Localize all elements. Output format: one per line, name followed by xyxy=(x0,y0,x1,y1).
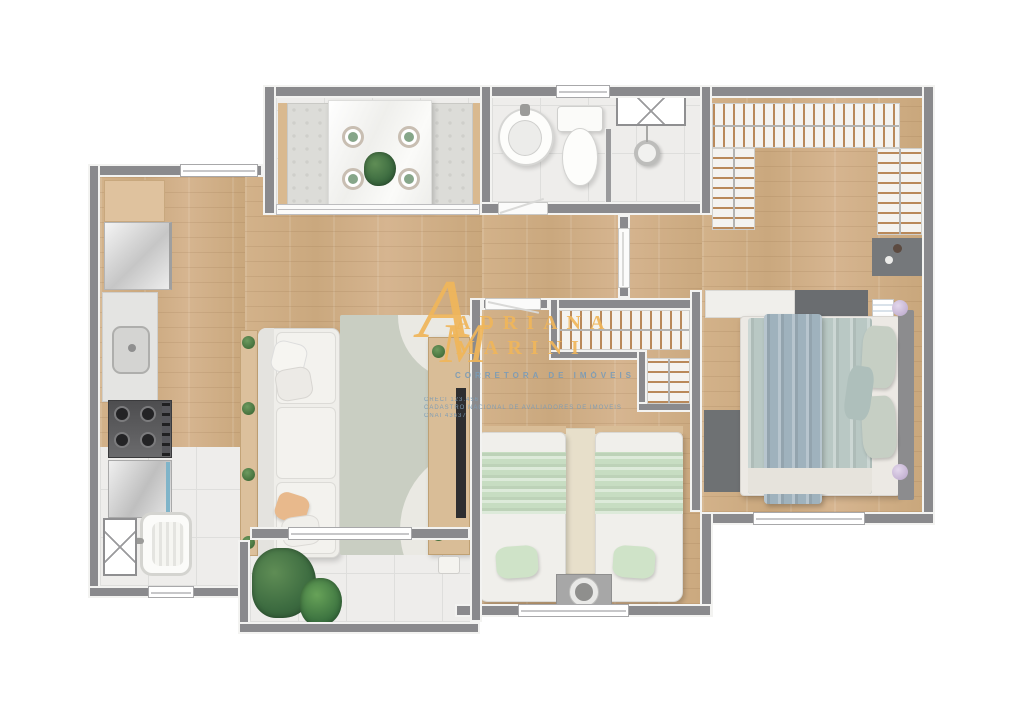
bathroom-sink-basin xyxy=(508,120,542,156)
service-area-window xyxy=(148,586,194,598)
bathroom-faucet xyxy=(520,104,530,116)
dining-bench-back-left xyxy=(278,103,287,205)
master-door-leaf xyxy=(622,232,624,286)
stove-burner xyxy=(114,432,130,448)
stove-burner xyxy=(140,406,156,422)
wall-master-left xyxy=(690,290,702,512)
stove-knob-panel xyxy=(162,402,170,456)
laundry-tub-board xyxy=(152,522,184,566)
wall-dining-left xyxy=(263,85,276,215)
wall-bath-closet-divider xyxy=(700,85,712,215)
bedroom2-window xyxy=(518,604,629,617)
console-plant xyxy=(242,468,255,481)
brand-tagline: CORRETORA DE IMÓVEIS xyxy=(455,371,635,380)
refrigerator xyxy=(104,222,172,290)
place-setting-plate xyxy=(398,168,420,190)
sofa-seat-cushion xyxy=(276,407,336,479)
bathroom-window xyxy=(556,85,610,98)
service-shaft xyxy=(103,518,137,576)
shower-head xyxy=(634,140,660,166)
stove-burner xyxy=(140,432,156,448)
bedroom2-closet-rack-right xyxy=(647,358,690,404)
single-bed-blanket xyxy=(478,452,566,514)
kitchen-faucet xyxy=(128,344,136,352)
brand-name-line1: ADRIANA xyxy=(456,312,613,335)
closet-rack-top xyxy=(712,103,900,148)
floor-plan: A M ADRIANA MARINI CORRETORA DE IMÓVEIS … xyxy=(0,0,1024,723)
dining-balcony-slider xyxy=(276,204,480,215)
wall-left xyxy=(88,164,100,598)
wall-bedroom2-right xyxy=(700,512,713,617)
console-plant xyxy=(242,402,255,415)
kitchen-window xyxy=(180,164,258,177)
closet-rack-right xyxy=(877,148,922,235)
tv-console-tray xyxy=(438,556,460,574)
wall-terrace-bottom xyxy=(238,622,480,634)
stove-burner xyxy=(114,406,130,422)
shower-partition xyxy=(605,128,612,208)
brand-detail-line2: CADASTRO NACIONAL DE AVALIADORES DE IMÓV… xyxy=(424,405,622,411)
single-bed-cushion xyxy=(612,545,656,580)
bedside-lamp xyxy=(892,464,908,480)
dining-bench-right xyxy=(430,103,473,205)
place-setting-plate xyxy=(398,126,420,148)
bedroom2-closet-wall-top xyxy=(549,298,702,310)
brand-detail-line3: CNAI 43637 xyxy=(424,413,467,419)
single-bed-cushion xyxy=(495,545,539,580)
washing-machine xyxy=(108,460,172,518)
sofa-console xyxy=(240,330,258,556)
wall-terrace-left xyxy=(238,540,250,634)
wall-dining-bath-divider xyxy=(480,85,492,215)
living-room-window xyxy=(288,527,412,540)
console-plant xyxy=(242,336,255,349)
bathroom-shaft xyxy=(616,96,686,126)
toilet-bowl xyxy=(562,128,598,186)
kitchen-upper-cabinet xyxy=(104,180,165,222)
brand-detail-line1: CRECI 123.456 xyxy=(424,397,479,403)
place-setting-plate xyxy=(342,168,364,190)
bedroom2-table-lamp xyxy=(570,578,598,606)
master-bedroom-window xyxy=(753,512,865,525)
brand-name-line2: MARINI xyxy=(456,337,588,360)
single-bed-blanket xyxy=(595,452,683,514)
master-sheet-fold xyxy=(748,468,872,494)
dining-bench-left xyxy=(287,103,330,205)
bedside-lamp xyxy=(892,300,908,316)
wall-right xyxy=(922,85,935,525)
cabinet-knob xyxy=(885,256,893,264)
cabinet-knob xyxy=(893,244,902,253)
master-door-opening xyxy=(618,228,630,288)
closet-rack-left xyxy=(712,148,755,230)
place-setting-plate xyxy=(342,126,364,148)
washing-machine-trim xyxy=(166,462,170,516)
